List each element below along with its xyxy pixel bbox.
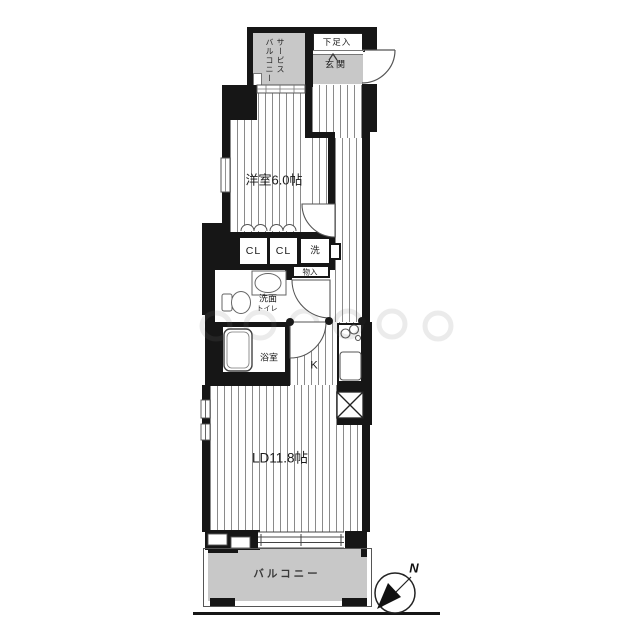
kitchen-label: K [310,361,317,372]
western-room-door-arc [302,204,335,237]
toilet-fixture [222,292,251,314]
toilet-label: トイレ [257,306,278,313]
kitchen-door-arc [290,322,326,358]
entrance-door-arc [362,50,395,83]
closet-right-label: CL [276,246,291,257]
balcony-label: バルコニー [253,569,320,580]
vanity-sink [252,271,286,295]
window-top [257,85,305,93]
washroom-label: 洗面 [259,295,277,304]
floor-plan: サービス バルコニー 下足入 玄関 洋室6.0帖 CL CL 洗 物入 洗面 ト… [0,0,640,640]
compass-icon [375,573,415,613]
window-ld-left [201,400,210,440]
compass-north-label: N [409,562,418,575]
closet-left-label: CL [246,246,261,257]
shoe-storage-label: 下足入 [323,38,352,47]
plan-overlay [0,0,640,640]
bathroom-label: 浴室 [260,354,278,363]
washer-label: 洗 [310,246,320,256]
service-balcony-line2: バルコニー [264,38,275,83]
window-ld-bottom [208,534,250,548]
western-room-label: 洋室6.0帖 [245,174,302,187]
service-balcony-line1: サービス [275,38,286,83]
living-dining-label: LD11.8帖 [252,451,308,465]
kitchen-sink [340,352,361,380]
sliding-door-lines [258,532,344,548]
bathtub [224,329,252,371]
pipe-space-hatch [337,392,363,418]
entrance-label: 玄関 [325,61,347,70]
window-west [221,158,230,192]
storage-label: 物入 [303,268,318,276]
closet-door-scallops [241,225,296,231]
service-balcony-label: サービス バルコニー [264,38,286,83]
